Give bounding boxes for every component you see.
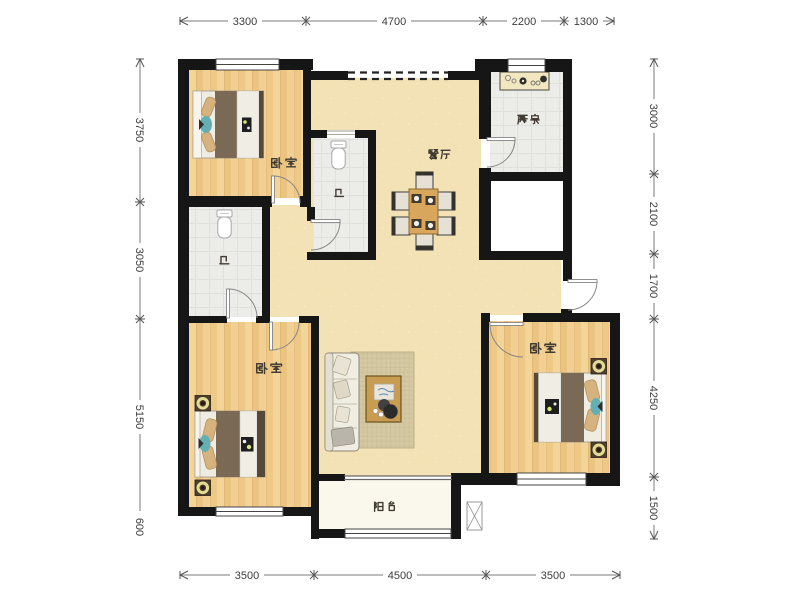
svg-text:1500: 1500 <box>647 496 659 520</box>
svg-text:600: 600 <box>133 518 145 536</box>
svg-text:2100: 2100 <box>647 202 659 226</box>
svg-text:2200: 2200 <box>512 16 536 28</box>
svg-text:4250: 4250 <box>647 386 659 410</box>
svg-text:1700: 1700 <box>647 274 659 298</box>
svg-text:5150: 5150 <box>133 405 145 429</box>
svg-text:1300: 1300 <box>574 16 598 28</box>
svg-text:3000: 3000 <box>647 104 659 128</box>
svg-text:3300: 3300 <box>233 16 257 28</box>
svg-text:3500: 3500 <box>235 570 259 582</box>
svg-text:3750: 3750 <box>133 118 145 142</box>
svg-text:3500: 3500 <box>541 570 565 582</box>
svg-text:3050: 3050 <box>133 248 145 272</box>
svg-text:4700: 4700 <box>382 16 406 28</box>
svg-text:4500: 4500 <box>388 570 412 582</box>
